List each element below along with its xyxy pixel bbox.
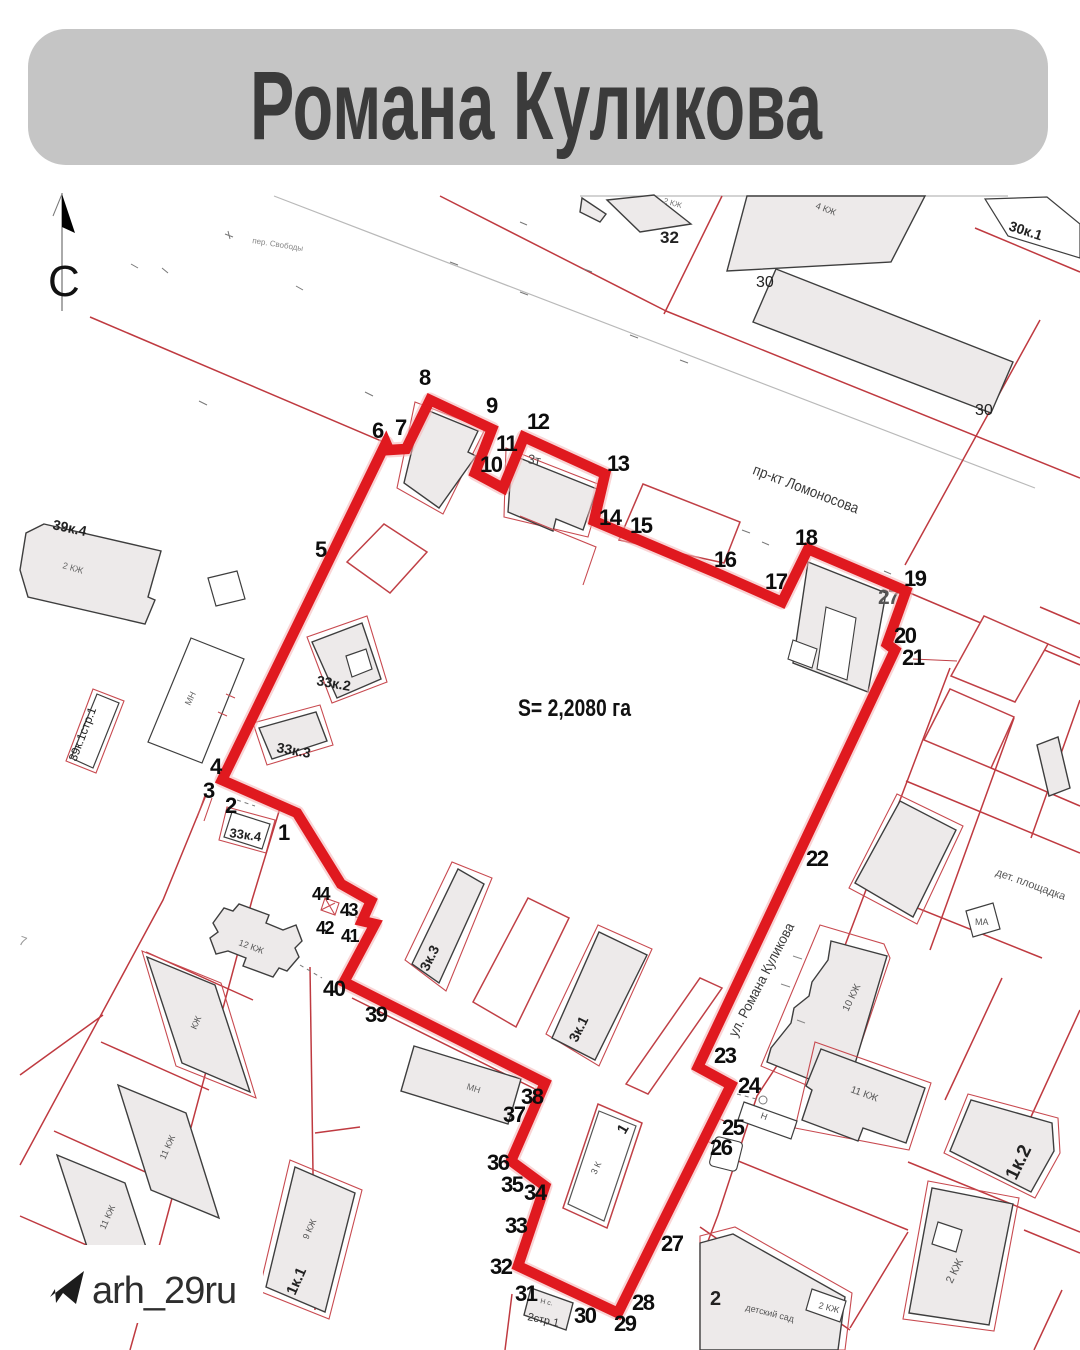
svg-text:31: 31 bbox=[515, 1281, 538, 1306]
svg-text:8: 8 bbox=[419, 365, 431, 390]
svg-text:2: 2 bbox=[225, 793, 237, 818]
svg-text:С: С bbox=[48, 257, 80, 306]
svg-text:18: 18 bbox=[795, 525, 818, 550]
svg-text:arh_29ru: arh_29ru bbox=[92, 1270, 236, 1312]
svg-text:19: 19 bbox=[904, 566, 927, 591]
svg-text:21: 21 bbox=[902, 645, 925, 670]
svg-text:6: 6 bbox=[372, 418, 384, 443]
svg-text:23: 23 bbox=[714, 1043, 737, 1068]
svg-text:30: 30 bbox=[975, 402, 993, 419]
svg-text:S= 2,2080 га: S= 2,2080 га bbox=[518, 695, 632, 722]
svg-text:39: 39 bbox=[365, 1002, 388, 1027]
svg-text:11: 11 bbox=[496, 431, 518, 456]
svg-text:43: 43 bbox=[340, 900, 359, 920]
svg-text:13: 13 bbox=[607, 451, 630, 476]
svg-text:40: 40 bbox=[323, 976, 346, 1001]
svg-text:33: 33 bbox=[505, 1213, 528, 1238]
svg-text:2: 2 bbox=[710, 1288, 721, 1310]
svg-text:29: 29 bbox=[614, 1311, 637, 1336]
svg-text:27: 27 bbox=[661, 1231, 684, 1256]
svg-text:44: 44 bbox=[312, 884, 331, 904]
svg-text:15: 15 bbox=[630, 513, 653, 538]
svg-text:34: 34 bbox=[524, 1180, 548, 1205]
svg-text:7: 7 bbox=[395, 415, 407, 440]
svg-text:32: 32 bbox=[660, 228, 679, 247]
svg-text:30: 30 bbox=[574, 1303, 597, 1328]
svg-text:14: 14 bbox=[599, 505, 623, 530]
svg-text:22: 22 bbox=[806, 846, 829, 871]
svg-text:12: 12 bbox=[527, 409, 550, 434]
svg-text:3т: 3т bbox=[526, 451, 542, 468]
svg-text:16: 16 bbox=[714, 547, 737, 572]
svg-text:24: 24 bbox=[738, 1073, 762, 1098]
svg-text:17: 17 bbox=[765, 569, 788, 594]
svg-text:9: 9 bbox=[486, 393, 498, 418]
svg-text:36: 36 bbox=[487, 1150, 510, 1175]
svg-text:26: 26 bbox=[710, 1135, 733, 1160]
svg-text:35: 35 bbox=[501, 1172, 524, 1197]
svg-text:3: 3 bbox=[203, 778, 215, 803]
svg-text:38: 38 bbox=[521, 1084, 544, 1109]
svg-text:41: 41 bbox=[341, 926, 360, 946]
svg-text:5: 5 bbox=[315, 537, 327, 562]
svg-text:1: 1 bbox=[278, 820, 290, 845]
svg-text:30: 30 bbox=[756, 274, 774, 291]
svg-text:32: 32 bbox=[490, 1254, 513, 1279]
svg-text:42: 42 bbox=[316, 918, 335, 938]
svg-text:МА: МА bbox=[975, 917, 989, 927]
svg-text:Романа Куликова: Романа Куликова bbox=[250, 51, 823, 160]
